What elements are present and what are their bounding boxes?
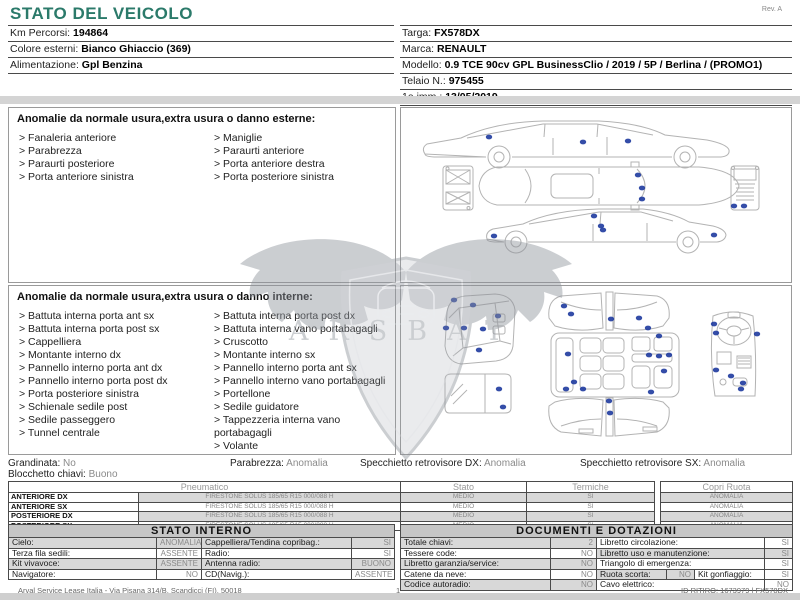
- list-item: > Pannello interno vano portabagagli: [214, 375, 390, 388]
- list-item: > Sedile guidatore: [214, 401, 390, 414]
- interior-damage-dots: [443, 298, 760, 416]
- internal-anomalies-col1: > Battuta interna porta ant sx > Battuta…: [19, 310, 204, 440]
- external-anomalies-col2: > Maniglie > Paraurti anteriore > Porta …: [214, 132, 390, 184]
- list-item: > Portellone: [214, 388, 390, 401]
- list-item: > Pannello interno porta post dx: [19, 375, 204, 388]
- column-header: Pneumatico: [9, 482, 401, 493]
- list-item: > Battuta interna vano portabagagli: [214, 323, 390, 336]
- list-item: > Tunnel centrale: [19, 427, 204, 440]
- check-specchietto-sx: Specchietto retrovisore SX: Anomalia: [580, 458, 745, 469]
- internal-anomalies-panel: Anomalie da normale usura,extra usura o …: [8, 285, 396, 455]
- table-row: POSTERIORE DX FIRESTONE SOLUS 185/65 R15…: [9, 512, 793, 522]
- column-header: Stato: [401, 482, 527, 493]
- divider-band-top: [0, 96, 800, 104]
- list-item: > Parabrezza: [19, 145, 204, 158]
- table-row: ANTERIORE DX FIRESTONE SOLUS 185/65 R15 …: [9, 493, 793, 503]
- stato-interno-table: STATO INTERNO Cielo:ANOMALIA Cappelliera…: [8, 524, 395, 580]
- external-anomalies-panel: Anomalie da normale usura,extra usura o …: [8, 107, 396, 283]
- list-item: > Porta posteriore sinistra: [214, 171, 390, 184]
- field-colore-esterni: Colore esterni: Bianco Ghiaccio (369): [8, 42, 394, 58]
- list-item: > Battuta interna porta post dx: [214, 310, 390, 323]
- list-item: > Montante interno dx: [19, 349, 204, 362]
- vehicle-summary-right: Targa: FX578DX Marca: RENAULT Modello: 0…: [400, 25, 792, 106]
- list-item: > Maniglie: [214, 132, 390, 145]
- list-item: > Volante: [214, 440, 390, 453]
- list-item: > Porta posteriore sinistra: [19, 388, 204, 401]
- table-row: Tessere code:NO Libretto uso e manutenzi…: [401, 548, 793, 559]
- table-row: ANTERIORE SX FIRESTONE SOLUS 185/65 R15 …: [9, 502, 793, 512]
- check-parabrezza: Parabrezza: Anomalia: [230, 458, 328, 469]
- list-item: > Tappezzeria interna vano portabagagli: [214, 414, 390, 439]
- list-item: > Battuta interna porta post sx: [19, 323, 204, 336]
- list-item: > Montante interno sx: [214, 349, 390, 362]
- divider-band-bottom: [0, 593, 800, 600]
- table-row: Catene da neve:NO Ruota scorta:NO Kit go…: [401, 569, 793, 580]
- internal-anomalies-title: Anomalie da normale usura,extra usura o …: [9, 286, 395, 306]
- list-item: > Fanaleria anteriore: [19, 132, 204, 145]
- list-item: > Battuta interna porta ant sx: [19, 310, 204, 323]
- list-item: > Paraurti anteriore: [214, 145, 390, 158]
- check-blocchetto-chiavi: Blocchetto chiavi: Buono: [8, 469, 118, 480]
- list-item: > Cruscotto: [214, 336, 390, 349]
- vehicle-status-report: STATO DEL VEICOLO Rev. A Km Percorsi: 19…: [0, 0, 800, 600]
- external-anomalies-col1: > Fanaleria anteriore > Parabrezza > Par…: [19, 132, 204, 184]
- list-item: > Cappelliera: [19, 336, 204, 349]
- list-item: > Porta anteriore destra: [214, 158, 390, 171]
- list-item: > Porta anteriore sinistra: [19, 171, 204, 184]
- table-row: Navigatore:NO CD(Navig.):ASSENTE: [9, 569, 395, 580]
- field-km-percorsi: Km Percorsi: 194864: [8, 26, 394, 42]
- list-item: > Pannello interno porta ant dx: [19, 362, 204, 375]
- check-specchietto-dx: Specchietto retrovisore DX: Anomalia: [360, 458, 526, 469]
- table-row: Totale chiavi:2 Libretto circolazione:SI: [401, 538, 793, 549]
- documenti-dotazioni-table: DOCUMENTI E DOTAZIONI Totale chiavi:2 Li…: [400, 524, 793, 591]
- interior-damage-diagram: [400, 285, 792, 455]
- interior-diagram-svg: [401, 286, 791, 454]
- exterior-damage-diagram: [400, 107, 792, 283]
- exterior-diagram-svg: [401, 108, 791, 282]
- table-row: Libretto garanzia/service:NO Triangolo d…: [401, 559, 793, 570]
- field-telaio: Telaio N.: 975455: [400, 74, 792, 90]
- page-title: STATO DEL VEICOLO: [10, 4, 193, 24]
- table-row: Kit vivavoce:ASSENTE Antenna radio:BUONO: [9, 559, 395, 570]
- field-targa: Targa: FX578DX: [400, 26, 792, 42]
- table-row: Cielo:ANOMALIA Cappelliera/Tendina copri…: [9, 538, 395, 549]
- list-item: > Sedile passeggero: [19, 414, 204, 427]
- column-header: Termiche: [527, 482, 655, 493]
- check-grandinata: Grandinata: No: [8, 458, 76, 469]
- field-alimentazione: Alimentazione: Gpl Benzina: [8, 58, 394, 74]
- section-header: DOCUMENTI E DOTAZIONI: [401, 525, 793, 538]
- list-item: > Paraurti posteriore: [19, 158, 204, 171]
- field-modello: Modello: 0.9 TCE 90cv GPL BusinessClio /…: [400, 58, 792, 74]
- field-marca: Marca: RENAULT: [400, 42, 792, 58]
- table-row: Terza fila sedili:ASSENTE Radio:SI: [9, 548, 395, 559]
- section-header: STATO INTERNO: [9, 525, 395, 538]
- list-item: > Schienale sedile post: [19, 401, 204, 414]
- revision-label: Rev. A: [762, 6, 782, 13]
- vehicle-summary-left: Km Percorsi: 194864 Colore esterni: Bian…: [8, 25, 394, 74]
- tyres-header-row: Pneumatico Stato Termiche Copri Ruota: [9, 482, 793, 493]
- column-header: Copri Ruota: [661, 482, 793, 493]
- external-anomalies-title: Anomalie da normale usura,extra usura o …: [9, 108, 395, 128]
- quick-checks-row: Grandinata: No Blocchetto chiavi: Buono …: [8, 458, 792, 480]
- internal-anomalies-col2: > Battuta interna porta post dx > Battut…: [214, 310, 390, 453]
- list-item: > Pannello interno porta ant sx: [214, 362, 390, 375]
